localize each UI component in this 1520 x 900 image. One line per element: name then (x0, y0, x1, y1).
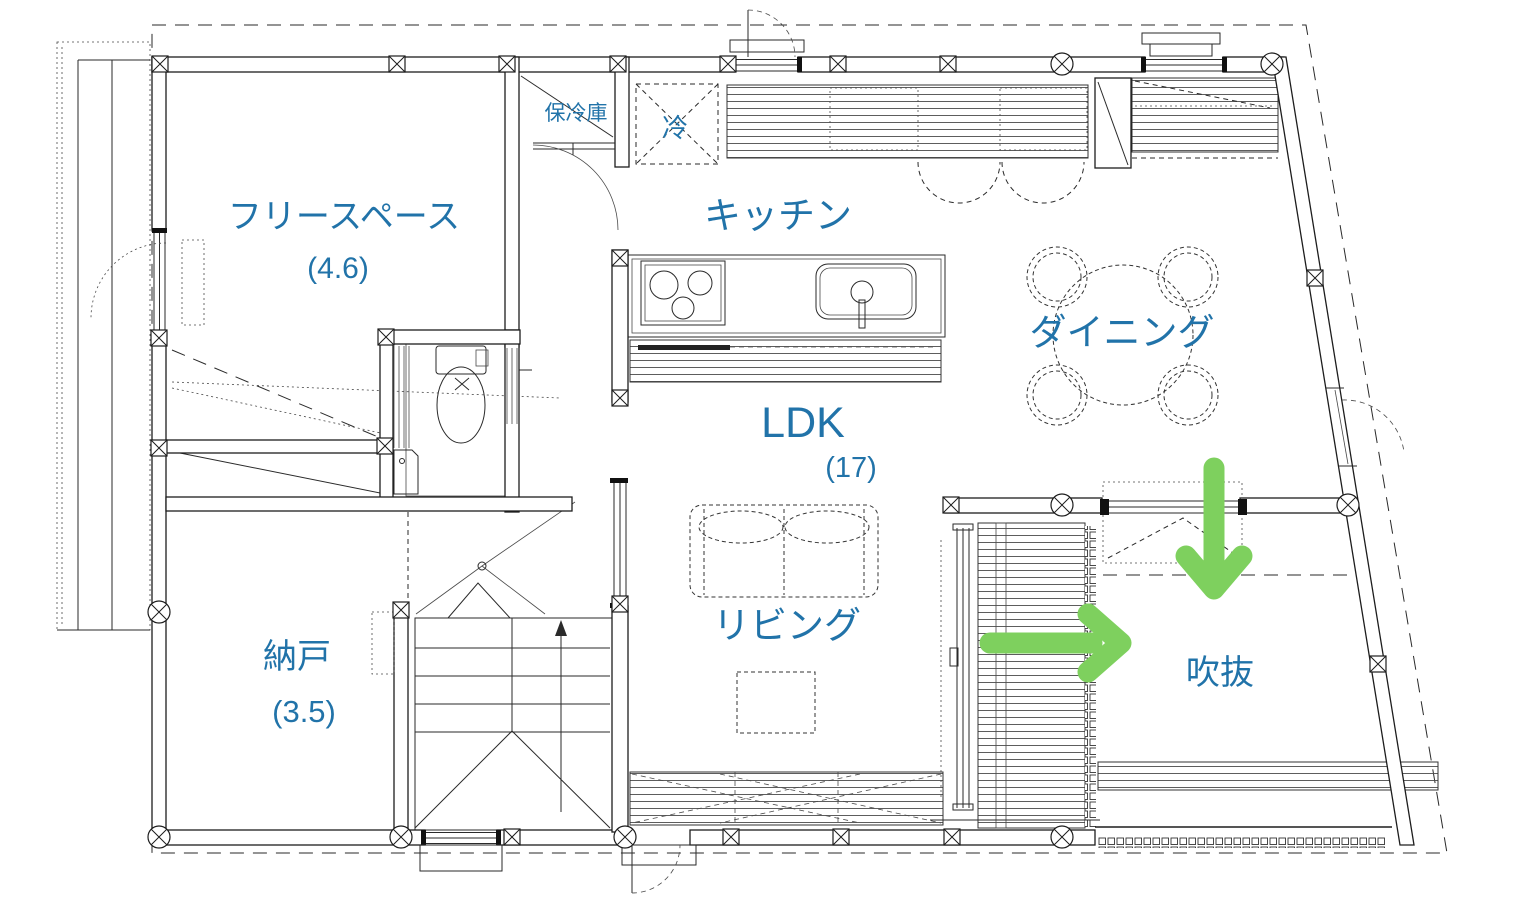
window-void-top (1100, 499, 1247, 515)
post (612, 596, 628, 612)
post-circled (148, 826, 170, 848)
room-label-freespace: フリースペース (228, 198, 460, 236)
room-label-kitchen: キッチン (704, 195, 852, 236)
sloped-ceiling-lines (172, 350, 560, 494)
kitchen-back-counter (727, 85, 1088, 203)
deck-window (950, 524, 973, 810)
floor-plan: フリースペース (4.6) 保冷庫 冷 キッチン ダイニング LDK (17) … (0, 0, 1520, 900)
kitchen-island (628, 255, 945, 337)
fixture-label-refrigerator: 冷 (662, 113, 688, 143)
post-circled (1261, 53, 1283, 75)
window-bottom (420, 830, 502, 871)
post-circled (390, 826, 412, 848)
post (378, 329, 394, 345)
walls (152, 57, 1414, 845)
post-circled (1337, 494, 1359, 516)
cold-storage-door (533, 143, 618, 230)
top-window-outside-step (730, 40, 804, 52)
post-circled (614, 826, 636, 848)
post (504, 829, 520, 845)
entrance-door (622, 845, 696, 893)
post (833, 829, 849, 845)
room-size-freespace: (4.6) (307, 252, 369, 285)
post (1370, 656, 1386, 672)
post-circled (148, 601, 170, 623)
post (377, 438, 393, 454)
post (151, 440, 167, 456)
deck-slat-band (930, 523, 1100, 828)
post (152, 56, 168, 72)
room-label-void: 吹抜 (1186, 654, 1254, 692)
fixture-label-cold-storage: 保冷庫 (545, 102, 608, 125)
post (610, 56, 626, 72)
window-top-a (731, 57, 802, 72)
post (1307, 270, 1323, 286)
post (389, 56, 405, 72)
airflow-down-arrow (1186, 468, 1242, 589)
floor-plan-canvas: フリースペース (4.6) 保冷庫 冷 キッチン ダイニング LDK (17) … (0, 0, 1520, 900)
window-living-west (610, 478, 628, 608)
cooktop-icon (641, 261, 725, 325)
island-front-counter (630, 340, 941, 382)
living-table (737, 672, 815, 733)
room-label-ldk: LDK (761, 399, 845, 447)
post (499, 56, 515, 72)
room-size-ldk: (17) (825, 452, 877, 484)
window-top-b (1141, 57, 1227, 72)
room-size-storage: (3.5) (272, 694, 336, 729)
room-label-storage: 納戸 (263, 638, 331, 676)
living-window-band (630, 772, 943, 825)
post-circled (1051, 494, 1073, 516)
post (723, 829, 739, 845)
post (612, 390, 628, 406)
sofa (690, 505, 878, 597)
post-circled (1051, 826, 1073, 848)
post (393, 602, 409, 618)
post (720, 56, 736, 72)
pantry-counter (1095, 78, 1278, 168)
post (943, 497, 959, 513)
room-label-dining: ダイニング (1030, 312, 1215, 353)
top-right-outside-step (1142, 33, 1220, 56)
post (940, 56, 956, 72)
door-top-swing (748, 10, 795, 57)
sink-icon (816, 264, 916, 328)
angled-wall (1272, 57, 1414, 845)
post (612, 250, 628, 266)
post (944, 829, 960, 845)
post (830, 56, 846, 72)
post-circled (1051, 53, 1073, 75)
balcony (57, 42, 150, 630)
toilet-icon (436, 346, 488, 443)
window-left (91, 228, 204, 342)
stairs (415, 583, 612, 830)
room-label-living: リビング (713, 605, 861, 646)
post (151, 330, 167, 346)
